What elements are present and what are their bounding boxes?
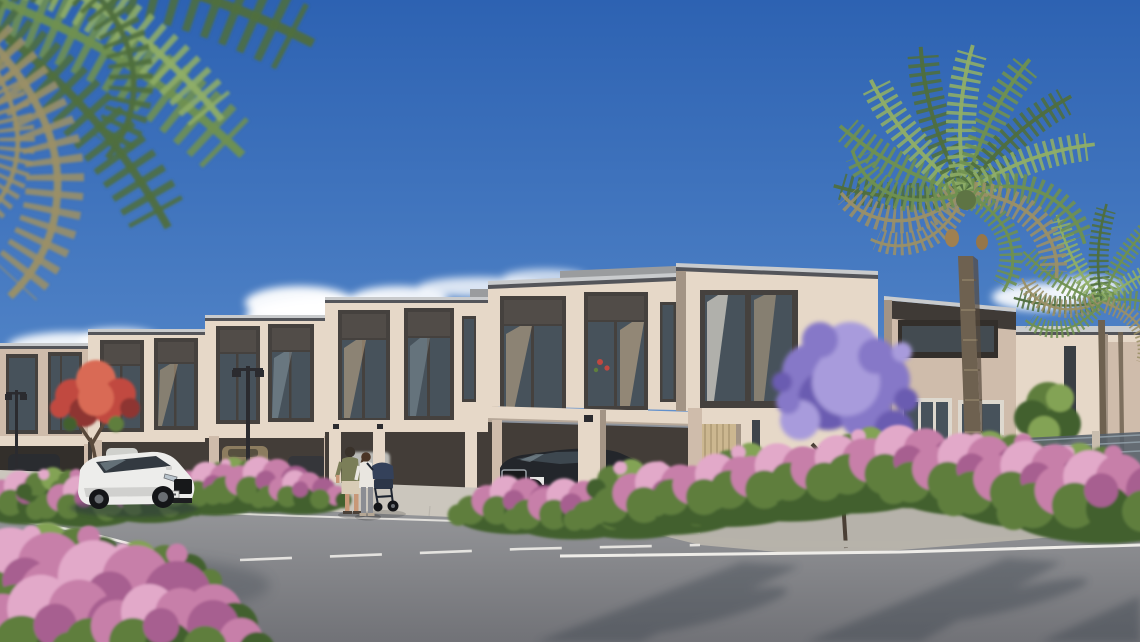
townhouse-street-rendering [0,0,1140,642]
pillar-lamp-fixture [584,415,593,422]
man-leg [345,494,350,511]
scene-canvas [0,0,1140,642]
window-interior-flowers [597,359,603,365]
white-suv-mirror [166,466,172,470]
stroller-body [374,479,393,489]
module-3-beam [205,428,334,438]
date-cluster [976,234,988,250]
module-2-beam [88,432,214,442]
stroller-canopy [372,463,394,480]
man-head [345,447,355,457]
man-shorts [342,481,361,494]
lamp-head [255,370,264,377]
woman-pants [361,487,366,513]
lamp-head [232,370,241,377]
date-cluster [945,229,959,247]
module-5-window-bay-1 [500,296,566,418]
module-5-slot-window [660,302,676,402]
module-1-beam [0,436,92,446]
stroller-wheel [374,503,383,512]
woman-top [359,462,374,489]
module-4-pillar-lamp [333,424,339,429]
module-5-window-bay-2 [584,292,648,414]
